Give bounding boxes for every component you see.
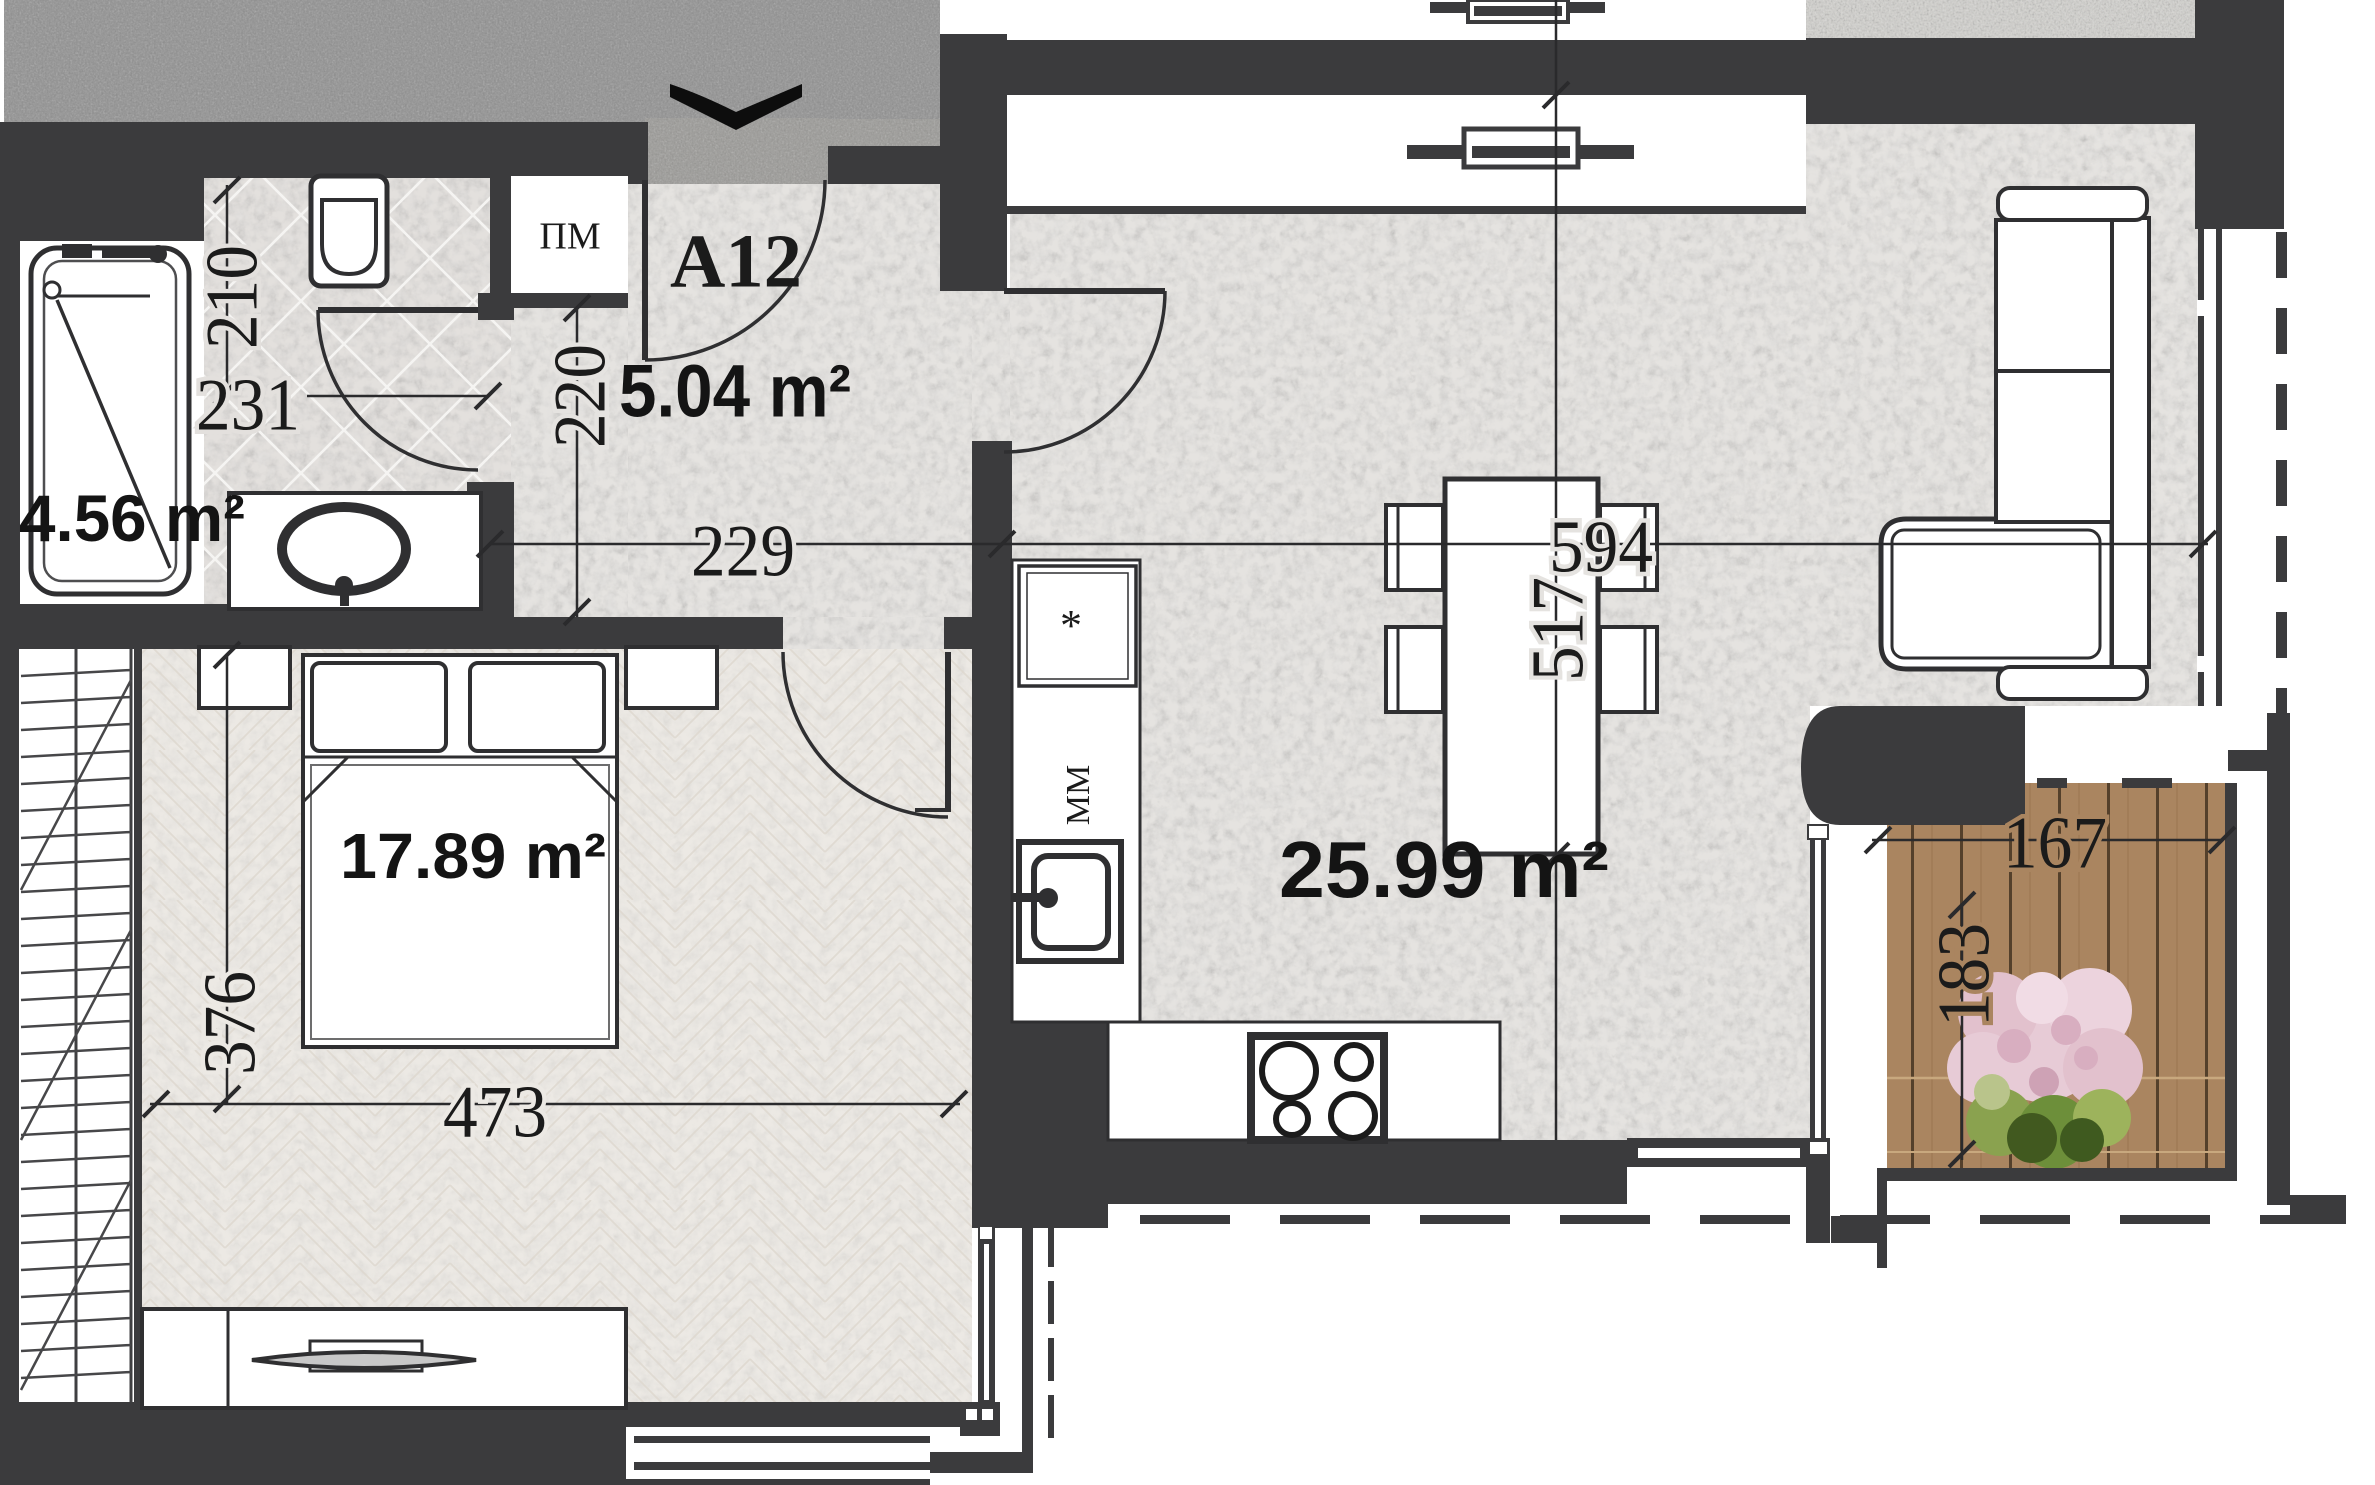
svg-text:A12: A12	[670, 219, 802, 303]
svg-text:376: 376	[190, 971, 272, 1075]
svg-text:5.04 m²: 5.04 m²	[619, 350, 851, 433]
svg-text:167: 167	[2003, 803, 2107, 885]
svg-text:MM: MM	[1060, 765, 1097, 825]
svg-text:17.89 m²: 17.89 m²	[340, 820, 606, 892]
svg-text:ПМ: ПМ	[539, 216, 600, 258]
svg-text:473: 473	[443, 1072, 547, 1154]
svg-text:4.56 m²: 4.56 m²	[19, 481, 245, 555]
svg-text:231: 231	[196, 365, 300, 447]
svg-text:594: 594	[1549, 507, 1653, 589]
svg-text:183: 183	[1924, 923, 2006, 1027]
svg-text:25.99 m²: 25.99 m²	[1279, 825, 1609, 914]
svg-text:229: 229	[691, 511, 795, 593]
svg-text:210: 210	[192, 245, 274, 349]
svg-text:*: *	[1060, 601, 1082, 650]
svg-text:220: 220	[540, 344, 622, 448]
svg-text:517: 517	[1518, 577, 1600, 681]
